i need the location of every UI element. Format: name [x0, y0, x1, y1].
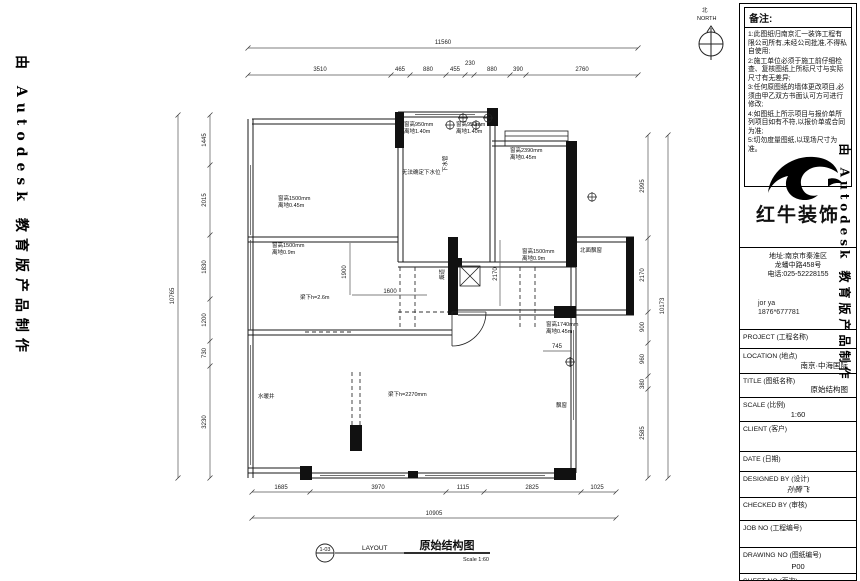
annotation: 烟道	[438, 268, 446, 280]
annotation: 北面飘窗	[580, 246, 603, 254]
field-label: CHECKED BY (审核)	[743, 499, 853, 509]
dim-label: 1025	[590, 485, 604, 491]
annotation: 窗高950mm	[404, 120, 434, 128]
dim-label: 3510	[313, 67, 327, 73]
footer-drawing-title: 原始结构图	[420, 538, 475, 552]
dim-label: 880	[423, 67, 434, 73]
dim-label: 465	[395, 67, 406, 73]
dim-label: 2585	[640, 426, 646, 440]
annotation: 窗高1500mm	[522, 247, 555, 255]
dim-label: 745	[552, 344, 563, 350]
dim-label: 3230	[202, 415, 208, 429]
field-drawing-no: DRAWING NO (图纸编号) P00	[740, 547, 856, 573]
dim-label: 380	[640, 378, 646, 389]
annotation: 离地1.40m	[456, 127, 483, 135]
contact-phone: 1876*677781	[758, 308, 800, 317]
field-value: 1:60	[791, 410, 806, 419]
note-item: 3:任何原图纸的墙体更改项目,必须由甲乙双方书面认可方可进行修改;	[748, 84, 848, 110]
dim-label: 10173	[660, 297, 666, 314]
field-label: JOB NO (工程编号)	[743, 522, 853, 532]
annotation: 梁下h=2.6m	[300, 293, 330, 301]
field-value: P00	[791, 562, 804, 571]
annotation: 离地0.45m	[278, 201, 305, 209]
note-item: 4:如图纸上所示项目与报价单所列项目如有不符,以报价单或合同为准;	[748, 111, 848, 137]
floor-plan-canvas: 北 NORTH	[0, 0, 860, 581]
annotation: 无法确定下水位	[402, 168, 441, 176]
dim-label: 2760	[575, 67, 589, 73]
field-sheet-no: SHEET NO (页次)	[740, 573, 856, 581]
dim-label: 2170	[640, 268, 646, 282]
annotation: 离地0.45m	[510, 153, 537, 161]
window-band	[505, 131, 568, 146]
notes-header: 备注:	[744, 7, 852, 28]
footer-mark: 1-03	[319, 547, 330, 553]
dim-label: 1685	[274, 485, 288, 491]
drawing-sheet: 由 Autodesk 教育版产品制作 北 NORTH	[0, 0, 860, 581]
dim-label: 230	[465, 61, 476, 67]
dim-label: 390	[513, 67, 524, 73]
footer-label: 1-03 LAYOUT 原始结构图 Scale 1:60	[316, 538, 490, 563]
annotation: 水暖井	[258, 392, 275, 400]
field-job-no: JOB NO (工程编号)	[740, 520, 856, 547]
north-label-en: NORTH	[697, 16, 716, 22]
annotation: 离地0.9m	[522, 254, 546, 262]
dim-label: 1115	[457, 485, 470, 491]
field-value: 孙腾飞	[787, 484, 810, 495]
dim-label: 1445	[202, 133, 208, 147]
dim-label: 730	[202, 347, 208, 358]
dim-label: 880	[487, 67, 498, 73]
annotation: 窗高1740mm	[546, 320, 579, 328]
dim-label: 1830	[202, 260, 208, 274]
flue-shaft	[460, 266, 480, 286]
footer-scale: Scale 1:60	[463, 557, 489, 563]
annotation: 梁下h=2270mm	[388, 390, 427, 398]
north-label-cn: 北	[702, 6, 708, 14]
annotation: 离地0.45m	[546, 327, 573, 335]
dim-label: 900	[640, 321, 646, 332]
dim-label: 2995	[640, 179, 646, 193]
dim-label: 1600	[383, 289, 397, 295]
dim-label: 3970	[371, 485, 385, 491]
annotation: 窗高2390mm	[510, 146, 543, 154]
dashed-openings	[305, 267, 535, 425]
annotation: 离地0.9m	[272, 248, 296, 256]
field-label: DRAWING NO (图纸编号)	[743, 549, 853, 559]
autodesk-watermark-right: 由 Autodesk 教育版产品制作	[837, 144, 854, 474]
annotation: 窗高950mm	[456, 120, 486, 128]
field-checked-by: CHECKED BY (审核)	[740, 497, 856, 520]
dim-label: 1200	[202, 313, 208, 327]
field-label: SHEET NO (页次)	[743, 575, 853, 581]
note-item: 2:施工单位必须于施工前仔细检查、复核图纸上所标尺寸与实际尺寸有无差异;	[748, 58, 848, 84]
footer-layout-label: LAYOUT	[362, 545, 388, 552]
dim-label: 455	[450, 67, 461, 73]
north-arrow-icon	[699, 26, 723, 60]
brand-name: 红牛装饰	[756, 204, 840, 226]
dim-label: 2015	[202, 193, 208, 207]
dim-label: 2825	[525, 485, 539, 491]
annotation: 下水管	[441, 155, 449, 172]
dim-label: 11560	[435, 40, 452, 46]
contact-block: jor ya 1876*677781	[758, 299, 800, 317]
door-swing	[452, 312, 486, 346]
dim-label: 10905	[426, 511, 443, 517]
annotation: 离地1.40m	[404, 127, 431, 135]
note-item: 1:此图纸归南京汇一装饰工程有限公司所有,未经公司批准,不得私自使用;	[748, 31, 848, 57]
dim-label: 2170	[493, 267, 499, 281]
annotation: 窗高1500mm	[278, 194, 311, 202]
field-label: DESIGNED BY (设计)	[743, 473, 853, 483]
dim-label: 1900	[342, 265, 348, 279]
dim-label: 960	[640, 353, 646, 364]
dim-label: 10765	[170, 287, 176, 304]
annotation: 飘窗	[556, 401, 568, 409]
annotation: 窗高1500mm	[272, 241, 305, 249]
field-designed-by: DESIGNED BY (设计) 孙腾飞	[740, 471, 856, 497]
contact-name: jor ya	[758, 299, 800, 308]
